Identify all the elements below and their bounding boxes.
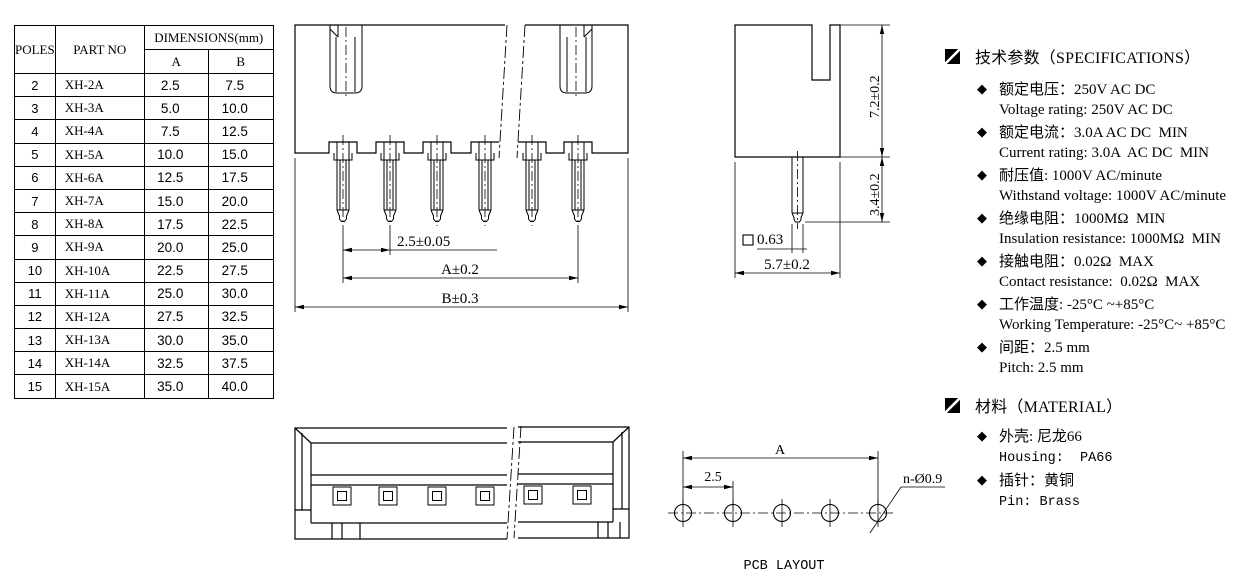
spec-en: Insulation resistance: 1000MΩ MIN bbox=[999, 229, 1221, 249]
spec-items: ◆ 额定电压：250V AC DCVoltage rating: 250V AC… bbox=[977, 80, 1251, 378]
spec-zh: 工作温度: -25°C ~+85°C bbox=[999, 295, 1225, 315]
table-row: 12XH-12A27.532.5 bbox=[15, 305, 274, 328]
side-housing-outline bbox=[735, 25, 840, 157]
cell-a: 27.5 bbox=[144, 305, 208, 328]
table-header-b: B bbox=[208, 50, 273, 74]
cell-part: XH-7A bbox=[55, 189, 144, 212]
cell-b: 40.0 bbox=[208, 375, 273, 398]
cell-a: 15.0 bbox=[144, 189, 208, 212]
section-square-icon bbox=[945, 49, 960, 64]
bottom-pin-holes bbox=[333, 486, 591, 505]
material-item: ◆ 插针：黄铜Pin: Brass bbox=[977, 471, 1251, 513]
section-square-icon bbox=[945, 398, 960, 413]
cell-b: 17.5 bbox=[208, 166, 273, 189]
front-dim-a-label: A±0.2 bbox=[441, 262, 479, 278]
spec-en: Current rating: 3.0A AC DC MIN bbox=[999, 143, 1209, 163]
cell-b: 30.0 bbox=[208, 282, 273, 305]
datasheet-page: POLES PART NO DIMENSIONS(mm) A B 2XH-2A2… bbox=[0, 0, 1251, 581]
cell-part: XH-2A bbox=[55, 74, 144, 97]
cell-poles: 2 bbox=[15, 74, 56, 97]
cell-poles: 4 bbox=[15, 120, 56, 143]
cell-poles: 3 bbox=[15, 97, 56, 120]
cell-part: XH-12A bbox=[55, 305, 144, 328]
cell-a: 17.5 bbox=[144, 213, 208, 236]
cell-b: 32.5 bbox=[208, 305, 273, 328]
pin-centerlines bbox=[343, 27, 578, 226]
spec-item: ◆ 接触电阻：0.02Ω MAXContact resistance: 0.02… bbox=[977, 252, 1251, 292]
cell-part: XH-4A bbox=[55, 120, 144, 143]
table-row: 15XH-15A35.040.0 bbox=[15, 375, 274, 398]
spec-zh: 额定电压：250V AC DC bbox=[999, 80, 1173, 100]
material-en: Housing: PA66 bbox=[999, 448, 1112, 469]
cell-part: XH-6A bbox=[55, 166, 144, 189]
spec-zh: 耐压值: 1000V AC/minute bbox=[999, 166, 1226, 186]
cell-b: 15.0 bbox=[208, 143, 273, 166]
table-row: 8XH-8A17.522.5 bbox=[15, 213, 274, 236]
cell-b: 37.5 bbox=[208, 352, 273, 375]
front-dim-b-label: B±0.3 bbox=[442, 291, 479, 307]
cell-part: XH-9A bbox=[55, 236, 144, 259]
front-view-drawing: 2.5±0.05 A±0.2 B±0.3 bbox=[283, 13, 653, 323]
specifications-title: 技术参数（SPECIFICATIONS） bbox=[975, 44, 1200, 68]
cell-part: XH-13A bbox=[55, 329, 144, 352]
cell-poles: 7 bbox=[15, 189, 56, 212]
cell-poles: 15 bbox=[15, 375, 56, 398]
spec-item: ◆ 额定电压：250V AC DCVoltage rating: 250V AC… bbox=[977, 80, 1251, 120]
cell-b: 35.0 bbox=[208, 329, 273, 352]
spec-en: Pitch: 2.5 mm bbox=[999, 358, 1090, 378]
cell-poles: 10 bbox=[15, 259, 56, 282]
diamond-bullet-icon: ◆ bbox=[977, 427, 991, 469]
spec-en: Voltage rating: 250V AC DC bbox=[999, 100, 1173, 120]
diamond-bullet-icon: ◆ bbox=[977, 209, 991, 249]
cell-a: 12.5 bbox=[144, 166, 208, 189]
cell-part: XH-5A bbox=[55, 143, 144, 166]
cell-a: 25.0 bbox=[144, 282, 208, 305]
spec-en: Contact resistance: 0.02Ω MAX bbox=[999, 272, 1200, 292]
cell-poles: 13 bbox=[15, 329, 56, 352]
pcb-dim-a-label: A bbox=[775, 443, 786, 458]
cell-a: 32.5 bbox=[144, 352, 208, 375]
cell-poles: 5 bbox=[15, 143, 56, 166]
cell-b: 27.5 bbox=[208, 259, 273, 282]
table-row: 7XH-7A15.020.0 bbox=[15, 189, 274, 212]
table-row: 6XH-6A12.517.5 bbox=[15, 166, 274, 189]
side-pin-square-label: 0.63 bbox=[757, 232, 783, 248]
square-pin-symbol bbox=[743, 235, 753, 245]
pcb-dimension-lines bbox=[683, 451, 945, 533]
cell-a: 35.0 bbox=[144, 375, 208, 398]
table-row: 10XH-10A22.527.5 bbox=[15, 259, 274, 282]
break-lines bbox=[499, 25, 525, 158]
dimension-lines bbox=[295, 158, 628, 312]
diamond-bullet-icon: ◆ bbox=[977, 471, 991, 513]
pcb-dim-pitch-label: 2.5 bbox=[704, 470, 722, 485]
table-row: 9XH-9A20.025.0 bbox=[15, 236, 274, 259]
cell-part: XH-11A bbox=[55, 282, 144, 305]
spec-zh: 绝缘电阻：1000MΩ MIN bbox=[999, 209, 1221, 229]
cell-a: 20.0 bbox=[144, 236, 208, 259]
table-row: 3XH-3A5.010.0 bbox=[15, 97, 274, 120]
spec-en: Withstand voltage: 1000V AC/minute bbox=[999, 186, 1226, 206]
cell-b: 20.0 bbox=[208, 189, 273, 212]
table-row: 5XH-5A10.015.0 bbox=[15, 143, 274, 166]
cell-a: 2.5 bbox=[144, 74, 208, 97]
specifications-header: 技术参数（SPECIFICATIONS） bbox=[945, 44, 1251, 68]
cell-b: 12.5 bbox=[208, 120, 273, 143]
front-dim-pitch-label: 2.5±0.05 bbox=[397, 234, 450, 250]
cell-part: XH-3A bbox=[55, 97, 144, 120]
cell-poles: 11 bbox=[15, 282, 56, 305]
side-dim-height-label: 7.2±0.2 bbox=[868, 75, 883, 118]
table-row: 2XH-2A2.57.5 bbox=[15, 74, 274, 97]
pins bbox=[334, 142, 587, 222]
pcb-layout-drawing: A 2.5 n-Ø0.9 PCB LAYOUT bbox=[643, 433, 953, 578]
spec-item: ◆ 额定电流：3.0A AC DC MINCurrent rating: 3.0… bbox=[977, 123, 1251, 163]
spec-item: ◆ 间距：2.5 mmPitch: 2.5 mm bbox=[977, 338, 1251, 378]
diamond-bullet-icon: ◆ bbox=[977, 166, 991, 206]
spec-zh: 间距：2.5 mm bbox=[999, 338, 1090, 358]
bottom-left-block bbox=[295, 428, 507, 539]
cell-a: 7.5 bbox=[144, 120, 208, 143]
material-en: Pin: Brass bbox=[999, 492, 1080, 513]
bottom-view-drawing bbox=[288, 423, 643, 548]
spec-zh: 接触电阻：0.02Ω MAX bbox=[999, 252, 1200, 272]
material-zh: 插针：黄铜 bbox=[999, 471, 1080, 492]
specifications-section: 技术参数（SPECIFICATIONS） ◆ 额定电压：250V AC DCVo… bbox=[945, 44, 1251, 515]
table-row: 11XH-11A25.030.0 bbox=[15, 282, 274, 305]
cell-a: 30.0 bbox=[144, 329, 208, 352]
cell-poles: 12 bbox=[15, 305, 56, 328]
spec-item: ◆ 耐压值: 1000V AC/minuteWithstand voltage:… bbox=[977, 166, 1251, 206]
pcb-hole-label: n-Ø0.9 bbox=[903, 472, 942, 487]
cell-a: 22.5 bbox=[144, 259, 208, 282]
table-header-a: A bbox=[144, 50, 208, 74]
spec-en: Working Temperature: -25°C~ +85°C bbox=[999, 315, 1225, 335]
cell-part: XH-8A bbox=[55, 213, 144, 236]
cell-poles: 9 bbox=[15, 236, 56, 259]
cell-poles: 14 bbox=[15, 352, 56, 375]
cell-b: 22.5 bbox=[208, 213, 273, 236]
material-title: 材料（MATERIAL） bbox=[975, 393, 1122, 417]
material-header: 材料（MATERIAL） bbox=[945, 393, 1251, 417]
cell-part: XH-14A bbox=[55, 352, 144, 375]
dimensions-table: POLES PART NO DIMENSIONS(mm) A B 2XH-2A2… bbox=[14, 25, 274, 399]
spec-item: ◆ 绝缘电阻：1000MΩ MINInsulation resistance: … bbox=[977, 209, 1251, 249]
cell-poles: 8 bbox=[15, 213, 56, 236]
cell-b: 7.5 bbox=[208, 74, 273, 97]
table-header-poles: POLES bbox=[15, 26, 56, 74]
pcb-caption: PCB LAYOUT bbox=[743, 559, 824, 574]
table-row: 4XH-4A7.512.5 bbox=[15, 120, 274, 143]
cell-b: 10.0 bbox=[208, 97, 273, 120]
diamond-bullet-icon: ◆ bbox=[977, 252, 991, 292]
table-header-dimensions: DIMENSIONS(mm) bbox=[144, 26, 273, 50]
side-dim-pin-label: 3.4±0.2 bbox=[868, 173, 883, 216]
table-row: 13XH-13A30.035.0 bbox=[15, 329, 274, 352]
cell-a: 5.0 bbox=[144, 97, 208, 120]
table-row: 14XH-14A32.537.5 bbox=[15, 352, 274, 375]
diamond-bullet-icon: ◆ bbox=[977, 123, 991, 163]
material-item: ◆ 外壳: 尼龙66Housing: PA66 bbox=[977, 427, 1251, 469]
cell-part: XH-15A bbox=[55, 375, 144, 398]
cell-part: XH-10A bbox=[55, 259, 144, 282]
cell-a: 10.0 bbox=[144, 143, 208, 166]
diamond-bullet-icon: ◆ bbox=[977, 295, 991, 335]
diamond-bullet-icon: ◆ bbox=[977, 80, 991, 120]
cell-poles: 6 bbox=[15, 166, 56, 189]
diamond-bullet-icon: ◆ bbox=[977, 338, 991, 378]
side-view-drawing: 7.2±0.2 3.4±0.2 0.63 5.7±0.2 bbox=[723, 13, 953, 303]
cell-b: 25.0 bbox=[208, 236, 273, 259]
table-header-part-no: PART NO bbox=[55, 26, 144, 74]
bottom-right-block bbox=[518, 427, 629, 538]
material-items: ◆ 外壳: 尼龙66Housing: PA66 ◆ 插针：黄铜Pin: Bras… bbox=[977, 427, 1251, 513]
front-housing-outline bbox=[295, 25, 628, 153]
spec-item: ◆ 工作温度: -25°C ~+85°CWorking Temperature:… bbox=[977, 295, 1251, 335]
side-dim-depth-label: 5.7±0.2 bbox=[764, 257, 810, 273]
spec-zh: 额定电流：3.0A AC DC MIN bbox=[999, 123, 1209, 143]
material-zh: 外壳: 尼龙66 bbox=[999, 427, 1112, 448]
